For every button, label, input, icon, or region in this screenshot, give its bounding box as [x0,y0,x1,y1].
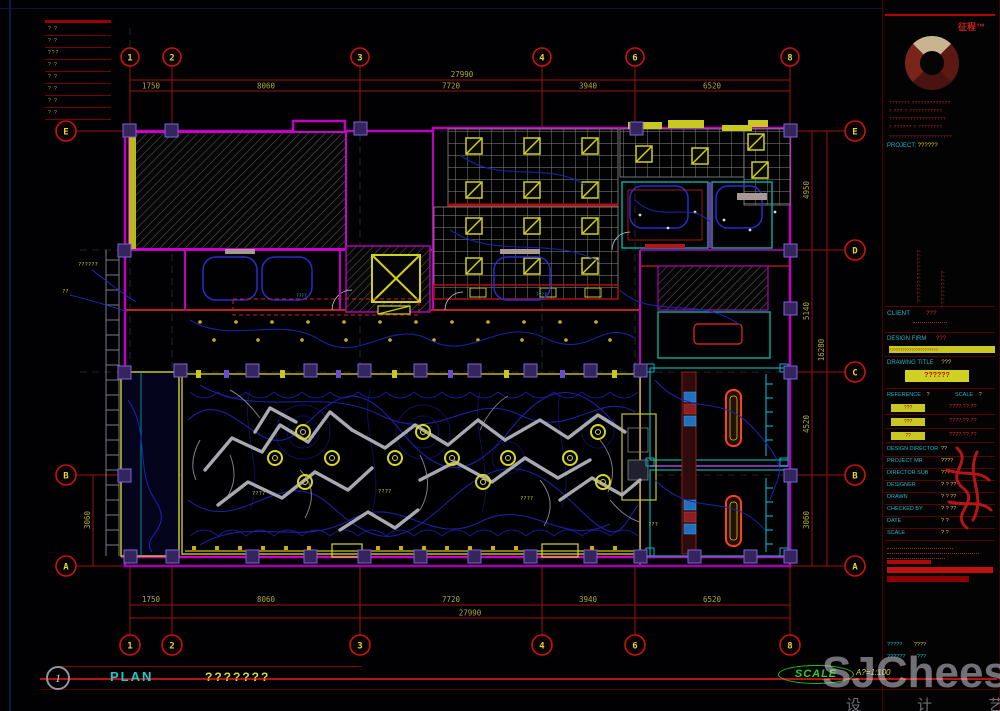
red-bar [887,576,969,582]
dim-top-total: 27990 [451,70,474,79]
staff-label: PROJECT MR [887,458,923,464]
design-firm-label: DESIGN FIRM [887,336,926,342]
dim: 4520 [802,414,811,433]
annotation-note: ???? [252,491,265,497]
grid-bubble-label: 2 [169,54,174,64]
client-value: ??? [926,310,937,317]
reference-label: REFERENCE [887,392,921,398]
stage-tag: ?? [891,432,925,440]
signature-stamp [935,440,995,550]
design-firm-value: ??? [936,336,946,342]
grid-bubble-label: D [852,247,858,257]
annotation-note: ???? [520,496,533,502]
stage-date: ????.??.?? [949,418,977,424]
grid-bubble-label: 6 [632,54,637,64]
staff-label: SCALE [887,530,905,536]
watermark-text: SJCheese [822,648,1000,698]
staff-label: DESIGNER [887,482,916,488]
dim: 6520 [703,595,722,604]
grid-bubble-label: 4 [539,54,545,64]
cad-sheet: ? ? ? ? ??? ? ? ? ? ? ? ? ? ? ? [0,0,1000,711]
dim-left: 3060 [83,510,92,529]
dim: 6520 [703,82,722,91]
grid-bubble-label: 8 [787,54,792,64]
scale-row-value: ? [979,392,982,398]
dim: 3940 [579,82,598,91]
grid-bubble-label: 2 [169,642,174,652]
watermark-subtext: 设 计 艺 士 [846,694,1000,711]
staff-label: CHECKED BY [887,506,923,512]
divider [885,428,995,429]
vertical-notes: ?????????? [941,216,947,308]
company-info-line: ??????????????????? [889,116,993,121]
grid-bubble-label: A [63,563,69,573]
company-info-line: ? ??? ? ??????????? [889,108,993,113]
red-bar [887,560,931,564]
reference-value: ? [926,392,929,398]
project-label: PROJECT: [887,143,916,149]
dim-bottom-total: 27990 [459,609,482,618]
grid-bubble-label: C [852,369,857,379]
dim: 3060 [802,510,811,529]
staff-label: DESIGN DIRECTOR [887,446,938,452]
annotation-note: ?????? [78,262,98,268]
footer-rule-short [58,666,362,667]
dim: 5140 [802,301,811,320]
annotation-note: ??? [648,522,658,528]
dim: 7720 [442,82,461,91]
grid-bubble-label: 3 [357,642,362,652]
project-value: ?????? [918,143,938,149]
divider [885,332,995,333]
dim: 7720 [442,595,461,604]
grid-bubble-label: 1 [127,54,132,64]
plan-title-label: PLAN [110,669,153,684]
grid-bubble-label: E [852,128,857,138]
grid-bubble-label: 4 [539,642,545,652]
annotation-dim: ???? [536,292,547,298]
divider [885,414,995,415]
client-label: CLIENT [887,310,910,317]
dim: 8060 [257,595,276,604]
scale-row-label: SCALE [955,392,973,398]
staff-label: DRAWN [887,494,908,500]
vertical-notes: ?????????????? [917,210,923,302]
stage-date: ????.??.?? [949,432,977,438]
plan-drawing: 27990 1750 8060 7720 3940 6520 1750 8060… [0,0,1000,711]
grid-bubble-label: B [852,472,858,482]
fine-print-line [887,554,945,559]
stage-tag: ??? [891,404,925,412]
grid-bubble-label: A [852,563,858,573]
dim: 8060 [257,82,276,91]
red-bar [887,567,993,573]
divider [885,388,995,389]
grid-bubble-label: B [63,472,69,482]
company-info-line: ? ?????? ? ???????? [889,124,993,129]
company-logo [905,36,959,90]
annotation-dim: ???? [296,293,307,299]
staff-label: DATE [887,518,901,524]
title-block-top-rule [885,14,995,16]
stage-tag: ??? [891,418,925,426]
brand-text: 征程™ [958,20,985,33]
divider [885,306,995,307]
grid-bubble-label: 6 [632,642,637,652]
company-info-line: ??????? ????????????? [889,100,993,105]
drawing-title-label: DRAWING TITLE [887,360,934,366]
grid-bubble-label: E [63,128,68,138]
annotation-note: ?? [62,289,69,295]
divider [885,356,995,357]
dim: 3940 [579,595,598,604]
left-stair-strip [106,250,179,556]
grid-bubble-label: 1 [127,642,132,652]
company-address-line: ????????????????????? [889,134,993,139]
title-block: 征程™ ??????? ????????????? ? ??? ? ??????… [882,0,1000,711]
detail-number-bubble: 1 [46,666,70,690]
drawing-title-value: ??? [941,360,951,366]
dim: 1750 [142,82,161,91]
annotation-note: ???? [378,489,391,495]
grid-bubble-label: 8 [787,642,792,652]
dim-right-total: 16280 [817,338,826,361]
staff-label: DIRECTOR SUB [887,470,928,476]
stage-date: ????.??.?? [949,404,977,410]
dim: 1750 [142,595,161,604]
dim: 4950 [802,180,811,199]
drawing-title-highlight: ?????? [905,370,969,382]
client-dotted-line [913,322,947,323]
design-firm-bar: ?????????????????????? [889,346,995,353]
grid-bubble-label: 3 [357,54,362,64]
plan-title-value: ??????? [205,670,270,684]
